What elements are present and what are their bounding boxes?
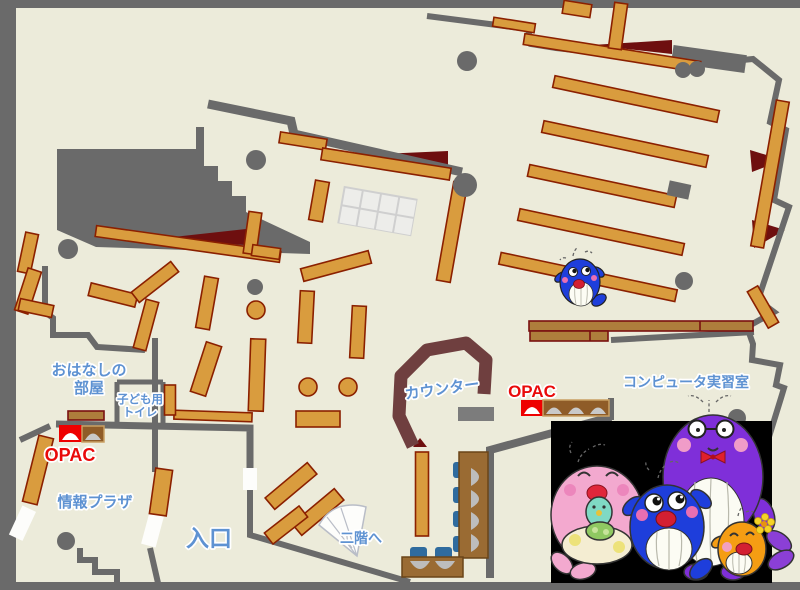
reading-table-vertical (453, 452, 488, 558)
label-opac-left: OPAC (45, 445, 96, 465)
opac-terminal-right (521, 400, 609, 416)
label-kids-toilet-line1: 子ども用 (117, 393, 163, 406)
label-storytelling-room-line1: おはなしの (51, 362, 126, 379)
label-entrance: 入口 (186, 525, 232, 551)
floor-map-canvas: おはなしの 部屋 子ども用 トイレ OPAC 情報プラザ 入口 二階へ カウンタ… (0, 0, 800, 590)
opac-terminal-left (59, 425, 104, 442)
label-storytelling-room-line2: 部屋 (74, 379, 104, 397)
label-opac-right: OPAC (508, 382, 556, 401)
label-info-plaza: 情報プラザ (57, 493, 132, 511)
library-floor-map: おはなしの 部屋 子ども用 トイレ OPAC 情報プラザ 入口 二階へ カウンタ… (0, 0, 800, 590)
label-kids-toilet-line2: トイレ (123, 406, 158, 419)
label-computer-room: コンピュータ実習室 (623, 374, 749, 390)
label-to-second-floor: 二階へ (340, 530, 382, 546)
